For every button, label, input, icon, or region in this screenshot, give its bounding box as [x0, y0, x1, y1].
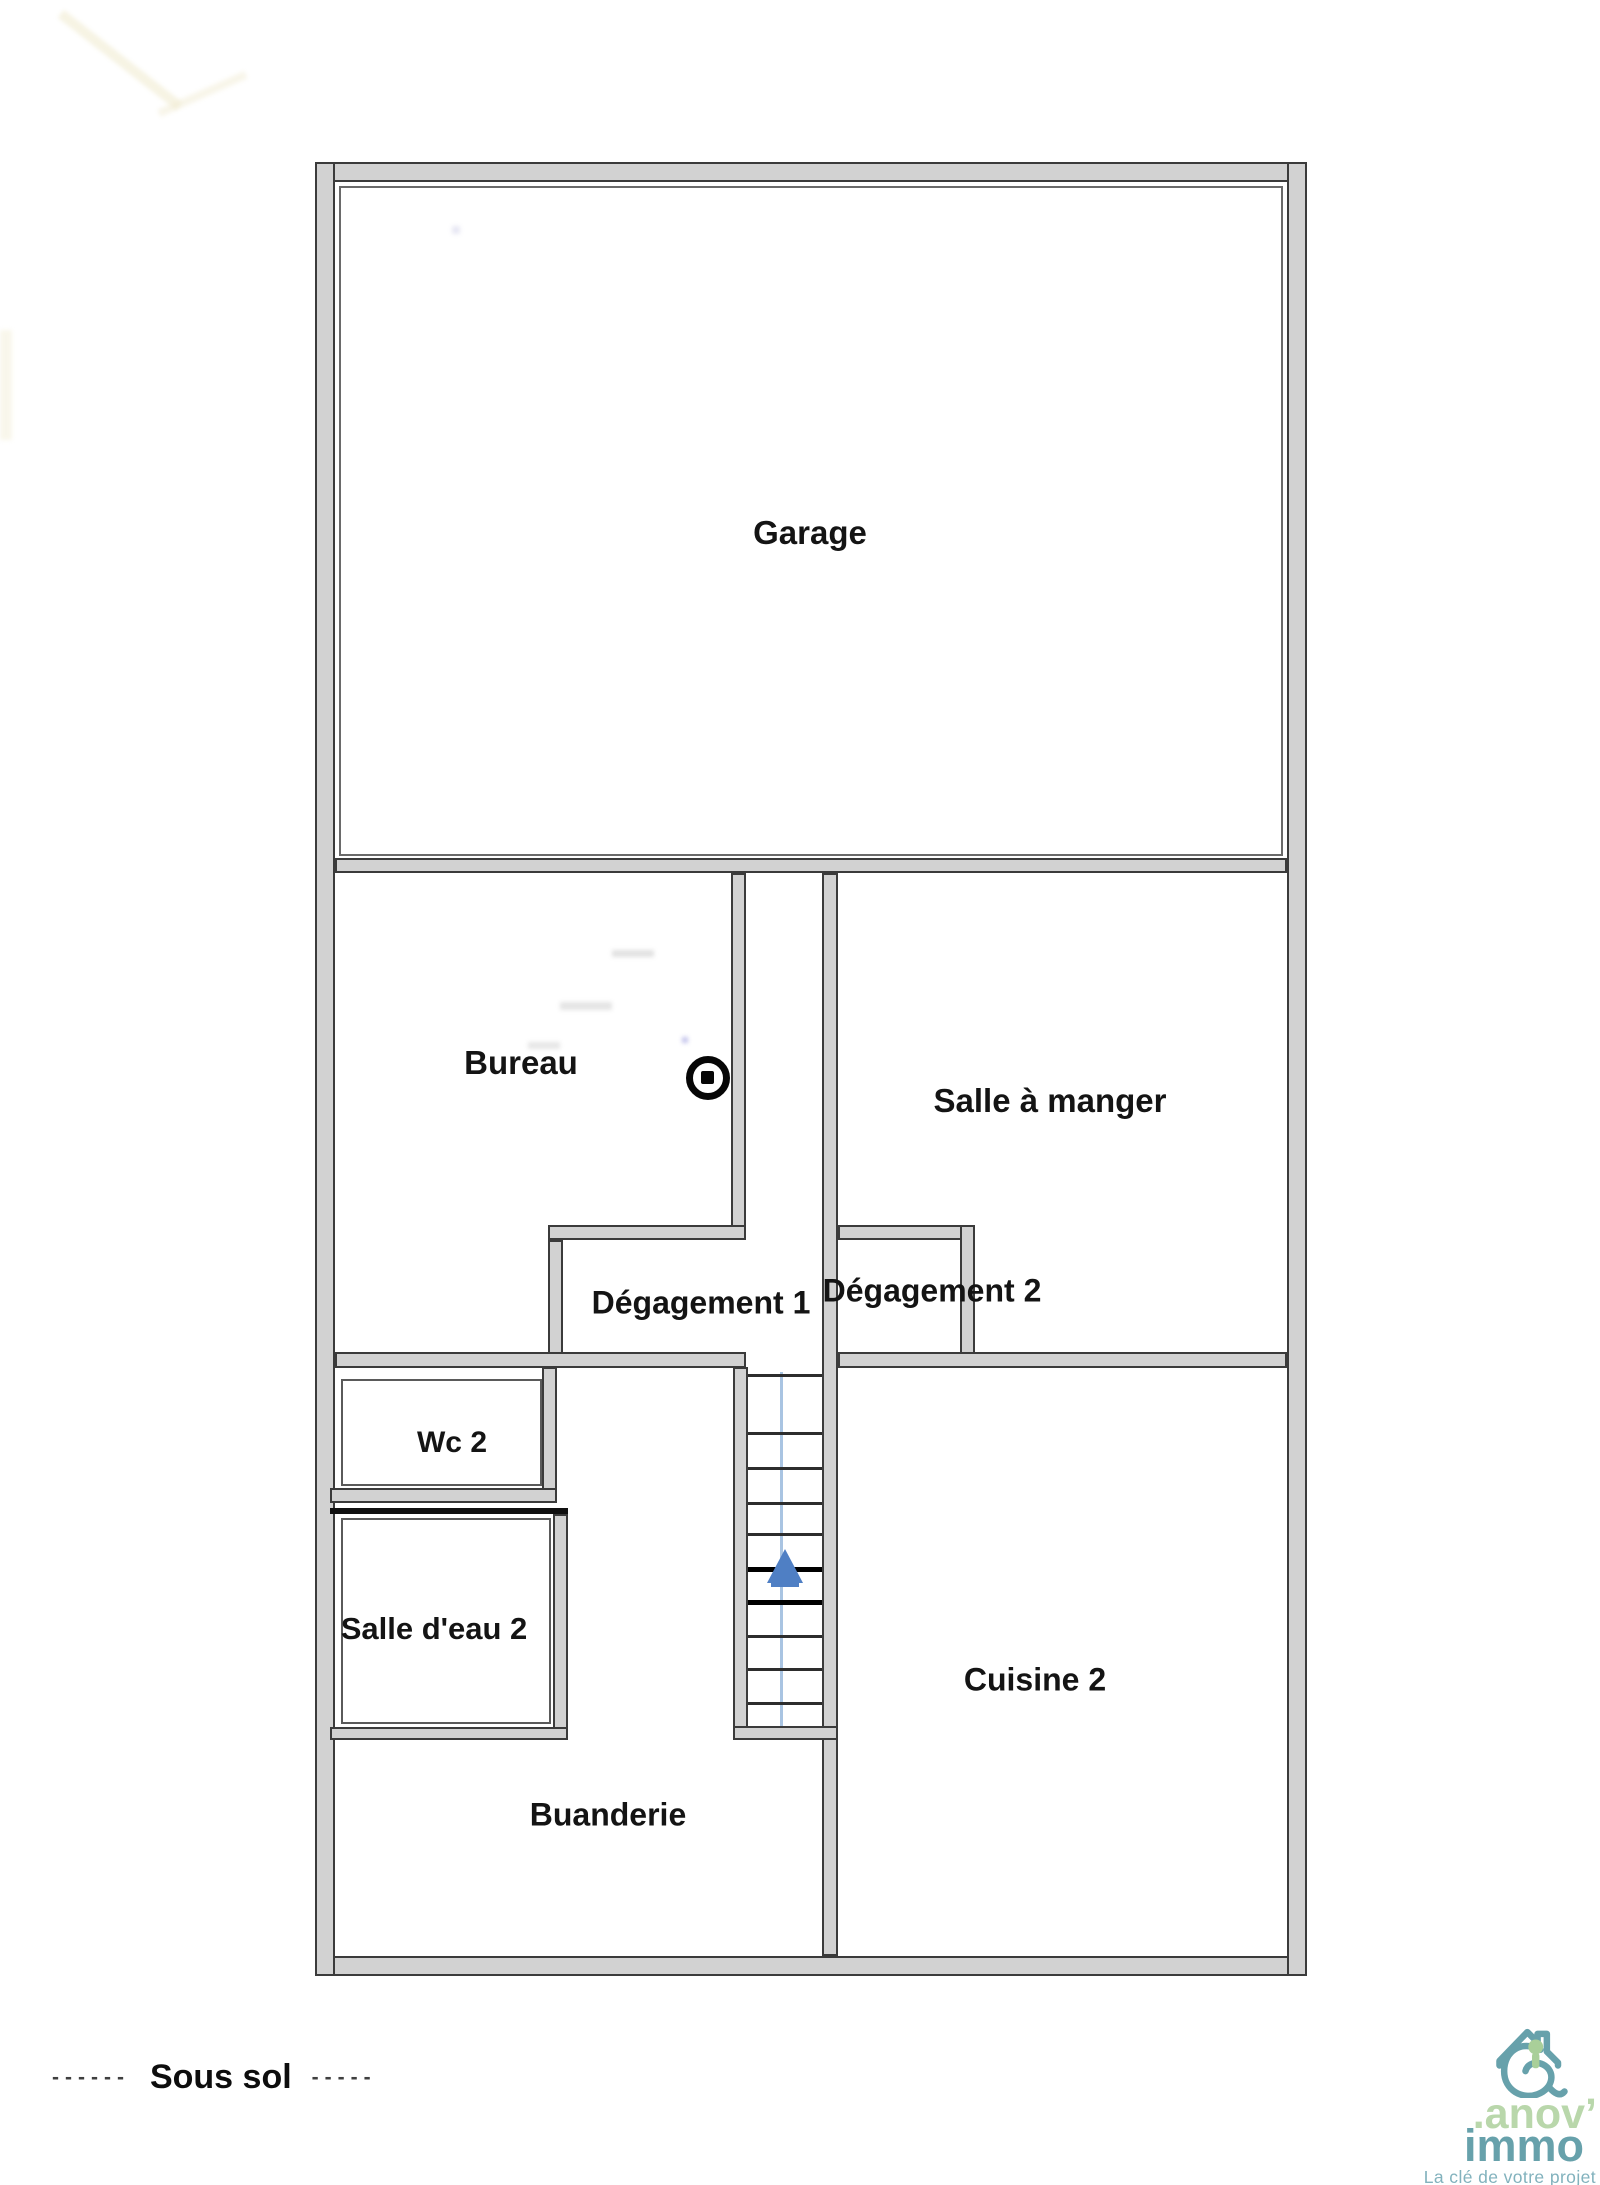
- stair-tread: [748, 1668, 822, 1671]
- stair-tread: [748, 1702, 822, 1705]
- caption-dashes-left: ------: [52, 2066, 130, 2090]
- agency-logo: .anov’ immo La clé de votre projet: [1328, 2020, 1600, 2185]
- logo-house-icon: [1484, 2020, 1580, 2098]
- stairs-up-arrow-icon: [767, 1549, 803, 1583]
- scan-artifact: [0, 330, 12, 440]
- circle-dot-symbol-center: [701, 1071, 714, 1084]
- level-label: Sous sol: [150, 2058, 292, 2097]
- room-label-wc-2: Wc 2: [417, 1426, 487, 1460]
- room-label-degagement-1: Dégagement 1: [592, 1285, 811, 1322]
- scan-artifact: [560, 1002, 612, 1010]
- wall-stairs-west: [733, 1367, 748, 1740]
- room-label-degagement-2: Dégagement 2: [823, 1273, 1042, 1310]
- floor-plan-page: Garage Bureau Salle à manger Dégagement …: [0, 0, 1600, 2185]
- stair-tread: [748, 1635, 822, 1638]
- wall-band-divider-west: [335, 1352, 746, 1368]
- wall-stairs-south: [733, 1726, 838, 1740]
- room-label-bureau: Bureau: [464, 1044, 578, 1082]
- wall-salle-deau2-south: [330, 1727, 568, 1740]
- wall-outer-left: [315, 162, 335, 1976]
- stair-tread: [748, 1467, 822, 1470]
- room-label-salle-d-eau-2: Salle d'eau 2: [341, 1611, 528, 1647]
- stair-tread: [748, 1533, 822, 1536]
- stair-tread: [748, 1502, 822, 1505]
- wall-band-divider-east: [838, 1352, 1287, 1368]
- scan-artifact: [682, 1037, 688, 1043]
- stair-tread: [748, 1432, 822, 1435]
- room-label-buanderie: Buanderie: [530, 1797, 686, 1834]
- wall-outer-right: [1287, 162, 1307, 1976]
- logo-text-immo: immo: [1328, 2128, 1600, 2164]
- wall-degagement2-north: [838, 1225, 975, 1240]
- level-caption: ------ Sous sol -----: [52, 2058, 377, 2097]
- room-label-cuisine-2: Cuisine 2: [964, 1662, 1106, 1699]
- wall-outer-bottom: [315, 1956, 1307, 1976]
- scan-artifact: [612, 950, 654, 957]
- room-label-garage: Garage: [753, 514, 867, 552]
- caption-dashes-right: -----: [312, 2066, 377, 2090]
- wall-wc2-south: [330, 1488, 557, 1503]
- wall-bureau-east: [731, 873, 746, 1240]
- wall-salle-deau2-east: [553, 1514, 568, 1740]
- wall-bureau-south: [548, 1225, 746, 1240]
- wall-salle-deau2-north: [330, 1508, 568, 1514]
- room-label-salle-a-manger: Salle à manger: [934, 1082, 1167, 1120]
- wall-corridor-east: [822, 873, 838, 1956]
- stairs-up-arrow-base: [771, 1581, 799, 1587]
- scan-artifact: [58, 10, 182, 110]
- wall-outer-top: [315, 162, 1307, 182]
- logo-tagline: La clé de votre projet: [1328, 2167, 1600, 2185]
- wall-wc2-east: [542, 1367, 557, 1503]
- wall-garage-south: [335, 858, 1287, 873]
- wall-bureau-step: [548, 1240, 563, 1368]
- stair-tread: [748, 1374, 822, 1377]
- stair-tread: [748, 1600, 822, 1605]
